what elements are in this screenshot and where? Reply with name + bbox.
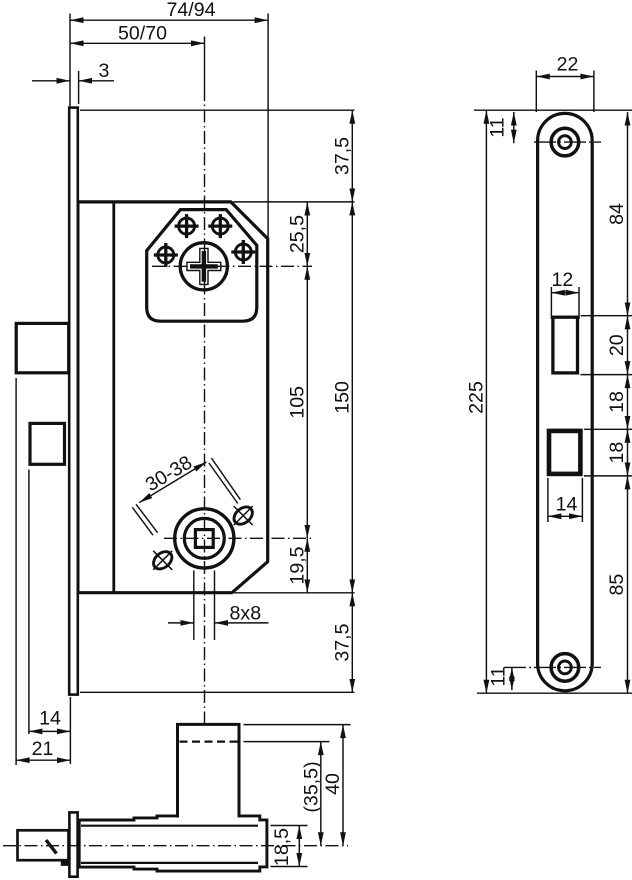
- svg-text:8x8: 8x8: [230, 603, 262, 625]
- svg-text:18: 18: [606, 442, 628, 464]
- svg-text:18,5: 18,5: [271, 828, 293, 866]
- svg-text:22: 22: [557, 54, 579, 76]
- svg-text:3: 3: [99, 60, 110, 82]
- svg-text:12: 12: [552, 269, 574, 291]
- svg-text:150: 150: [331, 381, 353, 414]
- svg-text:37,5: 37,5: [331, 137, 353, 175]
- svg-text:40: 40: [322, 773, 344, 795]
- svg-text:85: 85: [606, 574, 628, 596]
- svg-text:105: 105: [286, 386, 308, 419]
- svg-text:14: 14: [556, 493, 578, 515]
- svg-text:50/70: 50/70: [118, 23, 167, 45]
- svg-text:74/94: 74/94: [166, 0, 215, 21]
- svg-text:21: 21: [32, 738, 54, 760]
- svg-text:37,5: 37,5: [331, 623, 353, 661]
- svg-text:84: 84: [606, 203, 628, 225]
- svg-text:14: 14: [39, 708, 61, 730]
- svg-text:20: 20: [606, 334, 628, 356]
- svg-text:25,5: 25,5: [286, 215, 308, 253]
- svg-text:18: 18: [606, 391, 628, 413]
- svg-text:11: 11: [488, 666, 510, 686]
- svg-text:19,5: 19,5: [286, 546, 308, 584]
- svg-text:(35,5): (35,5): [301, 761, 323, 812]
- svg-text:11: 11: [487, 117, 509, 137]
- svg-text:225: 225: [465, 381, 487, 414]
